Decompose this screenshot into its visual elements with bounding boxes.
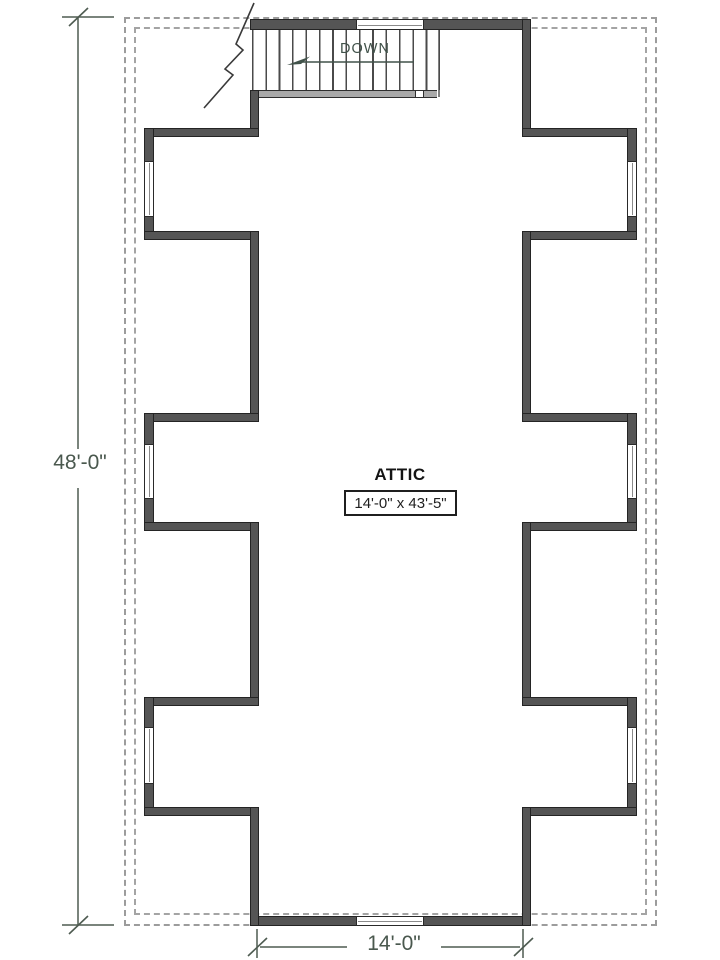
- down-arrow-head-icon: [287, 57, 310, 66]
- room-size-box: 14'-0" x 43'-5": [344, 490, 457, 516]
- dimension-left-label: 48'-0": [38, 451, 122, 475]
- stair-break-line: [204, 3, 254, 108]
- dimension-bottom-label: 14'-0": [347, 932, 441, 956]
- stairs-down-label: DOWN: [330, 41, 400, 57]
- room-name-label: ATTIC: [355, 465, 445, 485]
- floor-plan: DOWN ATTIC 14'-0" x 43'-5" 48'-0" 14'-0": [0, 0, 720, 960]
